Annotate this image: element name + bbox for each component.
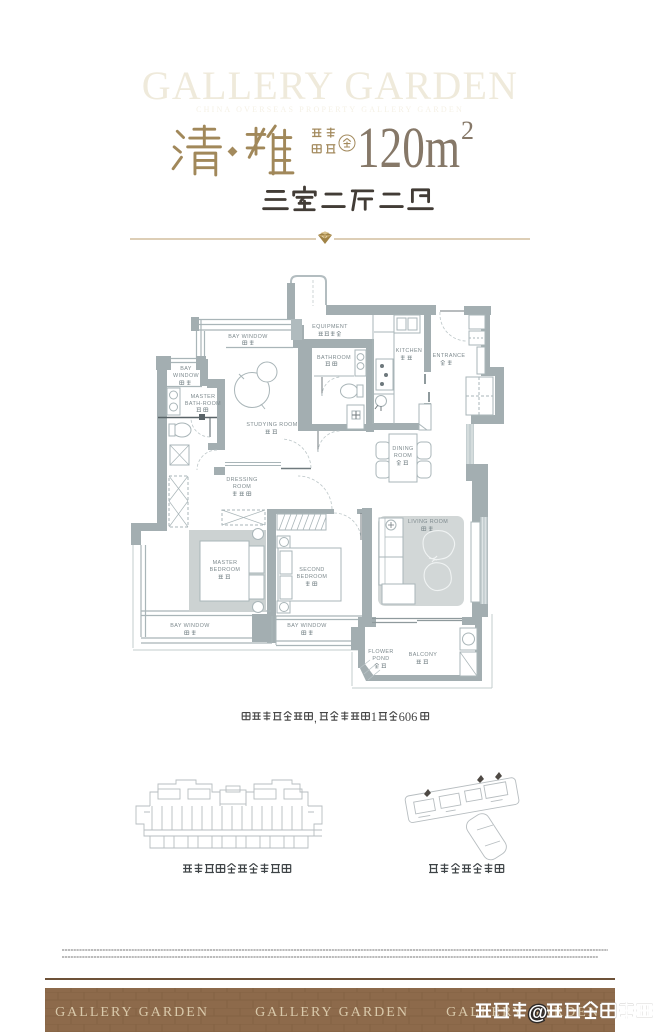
svg-text:CHINA OVERSEAS PROPERTY GALLER: CHINA OVERSEAS PROPERTY GALLERY GARDEN	[196, 105, 464, 114]
svg-text:GALLERY GARDEN: GALLERY GARDEN	[142, 63, 518, 108]
svg-text:1: 1	[371, 710, 377, 724]
svg-text:GALLERY GARDEN: GALLERY GARDEN	[55, 1005, 209, 1020]
svg-text:GALLERY GARDEN: GALLERY GARDEN	[255, 1005, 409, 1020]
svg-text:ROOM: ROOM	[394, 453, 412, 459]
svg-text:ROOM: ROOM	[233, 484, 251, 490]
svg-text:EQUIPMENT: EQUIPMENT	[312, 324, 348, 330]
svg-text:120m: 120m	[357, 117, 460, 181]
svg-text:FLOWER: FLOWER	[368, 649, 393, 655]
svg-text:2: 2	[461, 116, 474, 145]
svg-text:STUDYING ROOM: STUDYING ROOM	[246, 422, 297, 428]
svg-text:SECOND: SECOND	[299, 567, 324, 573]
svg-text:@: @	[528, 1002, 548, 1024]
svg-text:DRESSING: DRESSING	[226, 477, 257, 483]
svg-text:BAY: BAY	[180, 366, 192, 372]
svg-text:ENTRANCE: ENTRANCE	[433, 353, 466, 359]
svg-text:LIVING ROOM: LIVING ROOM	[408, 519, 448, 525]
svg-text:BAY WINDOW: BAY WINDOW	[228, 334, 268, 340]
svg-text:DINING: DINING	[392, 446, 413, 452]
svg-text:KITCHEN: KITCHEN	[396, 348, 422, 354]
svg-text:MASTER: MASTER	[191, 394, 216, 400]
svg-text:BATHROOM: BATHROOM	[317, 355, 351, 361]
svg-text:,: ,	[314, 711, 317, 725]
svg-text:606: 606	[399, 710, 418, 724]
svg-text:BALCONY: BALCONY	[409, 652, 438, 658]
svg-text:BAY WINDOW: BAY WINDOW	[287, 623, 327, 629]
svg-text:MASTER: MASTER	[213, 560, 238, 566]
svg-text:BAY WINDOW: BAY WINDOW	[170, 623, 210, 629]
svg-text:WINDOW: WINDOW	[173, 373, 200, 379]
svg-text:POND: POND	[372, 656, 389, 662]
svg-text:BEDROOM: BEDROOM	[297, 574, 328, 580]
svg-text:BATH-ROOM: BATH-ROOM	[185, 401, 221, 407]
svg-text:BEDROOM: BEDROOM	[210, 567, 241, 573]
